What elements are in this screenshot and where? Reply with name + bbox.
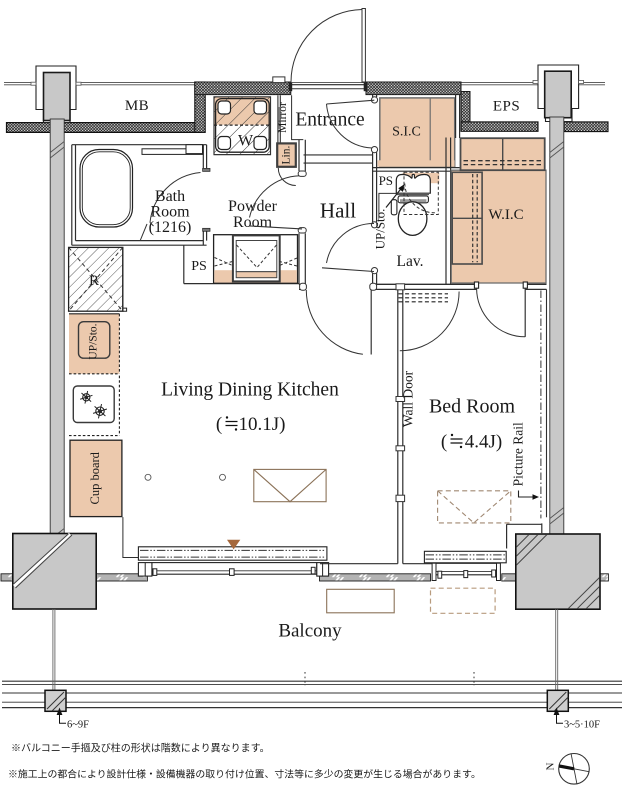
svg-text:Bath: Bath (155, 188, 185, 205)
svg-text:Mirror: Mirror (277, 102, 289, 133)
svg-text:3~5·10F: 3~5·10F (564, 720, 600, 731)
svg-text:Cup board: Cup board (88, 451, 102, 504)
svg-text:MB: MB (125, 98, 149, 114)
svg-text:※バルコニー手摳及び柱の形状は階数により異なります。: ※バルコニー手摳及び柱の形状は階数により異なります。 (11, 742, 270, 755)
svg-text:Lin.: Lin. (281, 146, 293, 165)
svg-text:UP/Sto.: UP/Sto. (88, 323, 100, 359)
svg-text:R: R (89, 273, 99, 289)
svg-text:(: ( (441, 432, 447, 453)
svg-text:Lav.: Lav. (397, 253, 424, 270)
svg-text:N: N (545, 762, 557, 770)
svg-text:Living Dining Kitchen: Living Dining Kitchen (161, 380, 339, 401)
svg-text:(: ( (216, 414, 222, 435)
svg-text:Bed Room: Bed Room (429, 396, 516, 418)
svg-text:S.I.C: S.I.C (392, 125, 421, 140)
svg-text:PS: PS (191, 259, 207, 274)
svg-text:UP/Sto.: UP/Sto. (373, 209, 388, 250)
svg-text:PS: PS (379, 173, 393, 188)
svg-text:10.1J): 10.1J) (239, 414, 286, 435)
svg-text:Room: Room (150, 204, 190, 221)
svg-text:4.4J): 4.4J) (465, 432, 502, 453)
svg-text:W.I.C: W.I.C (488, 207, 523, 223)
svg-text:(1216): (1216) (149, 219, 192, 236)
svg-text:Hall: Hall (320, 199, 356, 223)
svg-text:Room: Room (233, 214, 273, 231)
svg-text:6~9F: 6~9F (67, 720, 89, 731)
svg-text:W: W (238, 133, 254, 150)
svg-text:Wall Door: Wall Door (401, 370, 416, 427)
svg-text:EPS: EPS (493, 99, 520, 115)
svg-text:Picture Rail: Picture Rail (511, 422, 526, 486)
svg-text:Balcony: Balcony (278, 621, 342, 642)
svg-text:※施工上の都合により設計仕様・設備機器の取り付け位置、寸法等: ※施工上の都合により設計仕様・設備機器の取り付け位置、寸法等に多少の変更が生じる… (8, 768, 481, 781)
